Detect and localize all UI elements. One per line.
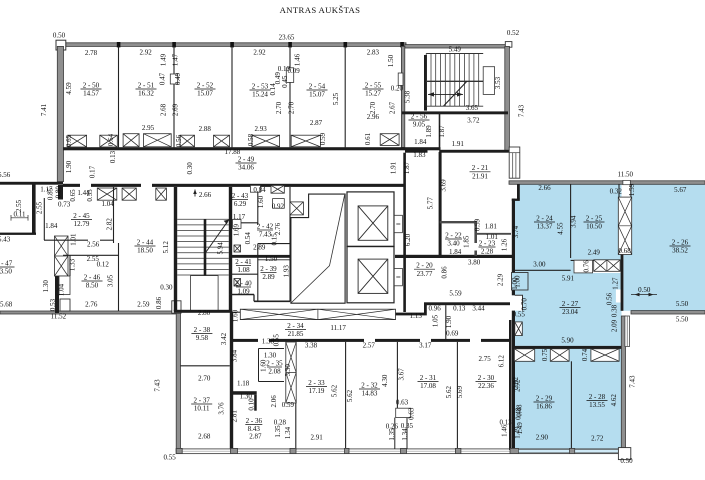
svg-text:2.57: 2.57 xyxy=(363,342,376,350)
svg-text:1.13: 1.13 xyxy=(410,312,423,320)
svg-text:1.81: 1.81 xyxy=(485,222,498,230)
svg-text:2.92: 2.92 xyxy=(139,49,152,57)
svg-text:2.49: 2.49 xyxy=(588,249,601,257)
svg-text:23.77: 23.77 xyxy=(417,270,433,278)
svg-text:5.50: 5.50 xyxy=(676,300,689,308)
svg-text:3.76: 3.76 xyxy=(218,402,226,415)
svg-text:17.19: 17.19 xyxy=(309,387,325,395)
svg-text:5.12: 5.12 xyxy=(162,241,170,254)
svg-text:0.75: 0.75 xyxy=(541,348,549,361)
svg-text:1.46: 1.46 xyxy=(500,424,508,437)
svg-text:2 - 29: 2 - 29 xyxy=(536,394,553,402)
svg-text:38.52: 38.52 xyxy=(672,247,688,255)
svg-text:0.47: 0.47 xyxy=(159,72,167,85)
svg-text:0.69: 0.69 xyxy=(446,330,459,338)
svg-text:2 - 37: 2 - 37 xyxy=(193,396,210,404)
svg-text:22.36: 22.36 xyxy=(478,382,494,390)
svg-text:2.87: 2.87 xyxy=(249,432,262,440)
svg-text:2.69: 2.69 xyxy=(172,103,180,116)
svg-text:2 - 55: 2 - 55 xyxy=(365,81,382,89)
svg-text:1.90: 1.90 xyxy=(445,315,453,328)
svg-text:1.84: 1.84 xyxy=(45,222,58,230)
svg-text:2.55: 2.55 xyxy=(15,199,23,212)
svg-text:3.30: 3.30 xyxy=(284,364,292,377)
svg-text:2 - 33: 2 - 33 xyxy=(308,379,325,387)
svg-text:1.91: 1.91 xyxy=(390,161,398,174)
svg-text:1.90: 1.90 xyxy=(65,160,73,173)
svg-text:0.45: 0.45 xyxy=(281,75,289,88)
svg-text:0.58: 0.58 xyxy=(247,133,255,146)
svg-text:0.63: 0.63 xyxy=(407,407,415,420)
svg-text:1.49: 1.49 xyxy=(516,422,524,435)
svg-text:2 - 44: 2 - 44 xyxy=(137,238,154,246)
svg-text:2 - 30: 2 - 30 xyxy=(478,374,495,382)
svg-text:2.66: 2.66 xyxy=(199,191,212,199)
svg-text:3.67: 3.67 xyxy=(398,368,406,381)
svg-text:3.53: 3.53 xyxy=(494,76,502,89)
svg-text:4.59: 4.59 xyxy=(65,82,73,95)
svg-text:16.86: 16.86 xyxy=(536,403,552,411)
svg-text:21.85: 21.85 xyxy=(288,330,304,338)
svg-text:1.69: 1.69 xyxy=(232,223,240,236)
svg-text:0.76: 0.76 xyxy=(583,260,591,273)
svg-text:2.89: 2.89 xyxy=(262,273,275,281)
svg-text:2.95: 2.95 xyxy=(142,124,155,132)
svg-text:2.93: 2.93 xyxy=(254,125,267,133)
svg-text:2.70: 2.70 xyxy=(288,101,296,114)
svg-text:1.50: 1.50 xyxy=(387,54,395,67)
svg-text:11.52: 11.52 xyxy=(51,313,67,321)
svg-text:13.37: 13.37 xyxy=(537,223,553,231)
svg-text:2.67: 2.67 xyxy=(389,101,397,114)
svg-text:3.72: 3.72 xyxy=(467,117,480,125)
svg-text:1.30: 1.30 xyxy=(264,352,277,360)
svg-text:0.55: 0.55 xyxy=(163,454,176,462)
svg-text:3.17: 3.17 xyxy=(419,342,432,350)
svg-text:11.17: 11.17 xyxy=(330,324,346,332)
svg-text:2 - 54: 2 - 54 xyxy=(309,82,326,90)
svg-text:2.09: 2.09 xyxy=(611,319,619,332)
svg-text:5.50: 5.50 xyxy=(676,316,689,324)
svg-text:5.94: 5.94 xyxy=(217,242,225,255)
svg-text:1.33: 1.33 xyxy=(68,258,76,271)
svg-text:2.66: 2.66 xyxy=(538,184,551,192)
svg-text:1.87: 1.87 xyxy=(403,161,411,174)
svg-text:2.82: 2.82 xyxy=(106,218,114,231)
svg-text:2 - 56: 2 - 56 xyxy=(411,112,428,120)
svg-text:15.24: 15.24 xyxy=(252,91,268,99)
svg-text:5.43: 5.43 xyxy=(0,236,11,244)
svg-text:2.81: 2.81 xyxy=(231,410,239,423)
svg-text:1.60: 1.60 xyxy=(232,309,240,322)
svg-text:2 - 32: 2 - 32 xyxy=(361,381,378,389)
svg-text:1.35: 1.35 xyxy=(388,428,396,441)
svg-text:0.61: 0.61 xyxy=(364,132,372,145)
svg-text:1.87: 1.87 xyxy=(438,125,446,138)
svg-text:2 - 38: 2 - 38 xyxy=(194,326,211,334)
svg-text:16.32: 16.32 xyxy=(138,90,154,98)
svg-text:5.90: 5.90 xyxy=(561,337,574,345)
svg-text:2 - 43: 2 - 43 xyxy=(232,192,249,200)
svg-text:3.84: 3.84 xyxy=(231,349,239,362)
svg-text:1.00: 1.00 xyxy=(511,277,519,290)
svg-text:0.50: 0.50 xyxy=(638,286,651,294)
svg-text:2 - 50: 2 - 50 xyxy=(83,81,100,89)
svg-text:1.47: 1.47 xyxy=(172,53,180,66)
svg-text:3.80: 3.80 xyxy=(468,259,481,267)
svg-text:0.14: 0.14 xyxy=(269,83,277,96)
svg-text:2 - 40: 2 - 40 xyxy=(235,279,252,287)
svg-text:0.74: 0.74 xyxy=(581,348,589,361)
svg-text:5.68: 5.68 xyxy=(0,301,13,309)
svg-text:9.58: 9.58 xyxy=(196,334,209,342)
svg-text:3.05: 3.05 xyxy=(107,274,115,287)
svg-text:3.65: 3.65 xyxy=(466,104,479,112)
svg-text:2.08: 2.08 xyxy=(268,368,281,376)
svg-text:5.67: 5.67 xyxy=(674,186,687,194)
svg-text:1.34: 1.34 xyxy=(284,426,292,439)
svg-text:0.80: 0.80 xyxy=(55,186,63,199)
svg-text:5.59: 5.59 xyxy=(449,290,462,298)
svg-text:0.32: 0.32 xyxy=(610,188,623,196)
svg-text:11.50: 11.50 xyxy=(618,171,634,179)
svg-text:13.55: 13.55 xyxy=(589,401,605,409)
svg-text:2 - 53: 2 - 53 xyxy=(252,82,269,90)
svg-text:1.49: 1.49 xyxy=(160,53,168,66)
svg-text:0.63: 0.63 xyxy=(396,398,409,406)
svg-text:1.84: 1.84 xyxy=(449,248,462,256)
svg-text:2.83: 2.83 xyxy=(367,49,380,57)
svg-text:2 - 41: 2 - 41 xyxy=(235,258,252,266)
svg-text:23.65: 23.65 xyxy=(279,34,295,42)
svg-text:3.38: 3.38 xyxy=(305,342,318,350)
svg-text:0.92: 0.92 xyxy=(272,203,285,211)
svg-text:15.27: 15.27 xyxy=(365,90,381,98)
svg-text:0.70: 0.70 xyxy=(520,298,528,311)
svg-text:2.68: 2.68 xyxy=(160,103,168,116)
svg-text:1.09: 1.09 xyxy=(237,288,250,296)
svg-text:2.28: 2.28 xyxy=(481,248,494,256)
svg-text:0.56: 0.56 xyxy=(175,134,183,147)
svg-text:15.07: 15.07 xyxy=(197,90,213,98)
svg-text:0.55: 0.55 xyxy=(273,334,281,347)
svg-text:2.06: 2.06 xyxy=(270,395,278,408)
svg-text:5.25: 5.25 xyxy=(332,92,340,105)
svg-text:1.91: 1.91 xyxy=(452,140,465,148)
svg-text:2.87: 2.87 xyxy=(310,119,323,127)
svg-text:3.42: 3.42 xyxy=(220,332,228,345)
svg-text:14.57: 14.57 xyxy=(83,90,99,98)
svg-text:0.48: 0.48 xyxy=(515,404,523,417)
svg-text:1.17: 1.17 xyxy=(233,213,246,221)
svg-text:2 - 24: 2 - 24 xyxy=(536,214,553,222)
svg-text:0.12: 0.12 xyxy=(97,261,110,269)
svg-text:1.30: 1.30 xyxy=(42,280,50,293)
svg-text:2.76: 2.76 xyxy=(274,222,282,235)
svg-text:2 - 49: 2 - 49 xyxy=(238,155,255,163)
svg-text:2 - 21: 2 - 21 xyxy=(472,164,489,172)
svg-text:1.46: 1.46 xyxy=(293,53,301,66)
svg-text:0.09: 0.09 xyxy=(287,67,300,75)
svg-text:1.85: 1.85 xyxy=(462,235,470,248)
svg-text:0.13: 0.13 xyxy=(109,150,117,163)
svg-text:2 - 27: 2 - 27 xyxy=(562,300,579,308)
svg-text:17.08: 17.08 xyxy=(420,382,436,390)
svg-text:1.60: 1.60 xyxy=(257,195,265,208)
svg-text:1.84: 1.84 xyxy=(414,138,427,146)
svg-text:7.41: 7.41 xyxy=(40,103,48,116)
svg-text:0.59: 0.59 xyxy=(474,218,482,231)
svg-text:0.55: 0.55 xyxy=(86,189,94,202)
svg-text:0.17: 0.17 xyxy=(89,165,97,178)
svg-text:2.59: 2.59 xyxy=(137,301,150,309)
svg-text:2 - 46: 2 - 46 xyxy=(84,273,101,281)
svg-text:0.30: 0.30 xyxy=(186,162,194,175)
svg-text:1.05: 1.05 xyxy=(432,314,440,327)
svg-text:1.27: 1.27 xyxy=(612,277,620,290)
svg-text:3.00: 3.00 xyxy=(533,261,546,269)
svg-text:2.88: 2.88 xyxy=(199,125,212,133)
svg-text:0.54: 0.54 xyxy=(244,232,252,245)
svg-text:2 - 20: 2 - 20 xyxy=(416,262,433,270)
svg-text:2.29: 2.29 xyxy=(497,273,505,286)
svg-text:15.07: 15.07 xyxy=(309,91,325,99)
svg-text:9.05: 9.05 xyxy=(413,121,426,129)
svg-text:3.74: 3.74 xyxy=(512,225,520,238)
svg-text:0.86: 0.86 xyxy=(155,296,163,309)
svg-text:0.53: 0.53 xyxy=(49,298,57,311)
svg-text:5.69: 5.69 xyxy=(456,385,464,398)
svg-text:1.04: 1.04 xyxy=(101,200,114,208)
svg-text:2.89: 2.89 xyxy=(253,244,266,252)
svg-text:2 - 26: 2 - 26 xyxy=(672,238,689,246)
svg-text:2 - 39: 2 - 39 xyxy=(260,265,277,273)
svg-text:2.92: 2.92 xyxy=(512,376,520,389)
svg-text:1.34: 1.34 xyxy=(401,428,409,441)
svg-text:0.96: 0.96 xyxy=(428,305,441,313)
svg-text:4.30: 4.30 xyxy=(381,374,389,387)
svg-text:1.59: 1.59 xyxy=(628,183,636,196)
svg-text:6.20: 6.20 xyxy=(404,233,412,246)
svg-text:0.38: 0.38 xyxy=(611,304,619,317)
svg-text:3.69: 3.69 xyxy=(440,179,448,192)
svg-text:0.68: 0.68 xyxy=(618,247,631,255)
svg-text:5.38: 5.38 xyxy=(403,90,411,103)
svg-text:7.43: 7.43 xyxy=(629,375,637,388)
svg-text:14.83: 14.83 xyxy=(362,390,378,398)
svg-text:1.83: 1.83 xyxy=(413,151,426,159)
svg-text:1.08: 1.08 xyxy=(237,266,250,274)
svg-text:0.50: 0.50 xyxy=(53,32,66,40)
svg-text:2 - 42: 2 - 42 xyxy=(257,222,274,230)
svg-text:2 - 34: 2 - 34 xyxy=(287,322,304,330)
svg-text:2 - 35: 2 - 35 xyxy=(266,359,283,367)
svg-text:0.20: 0.20 xyxy=(391,85,404,93)
svg-text:10.11: 10.11 xyxy=(194,405,210,413)
svg-text:5.62: 5.62 xyxy=(445,385,453,398)
svg-text:0.85: 0.85 xyxy=(47,187,55,200)
svg-text:2 - 28: 2 - 28 xyxy=(589,393,606,401)
svg-text:7.43: 7.43 xyxy=(153,379,161,392)
svg-text:10.50: 10.50 xyxy=(586,223,602,231)
svg-text:3.40: 3.40 xyxy=(447,240,460,248)
svg-text:0.49: 0.49 xyxy=(174,72,182,85)
svg-text:0.65: 0.65 xyxy=(65,134,73,147)
svg-text:0.64: 0.64 xyxy=(107,133,115,146)
svg-text:1.26: 1.26 xyxy=(501,238,509,251)
svg-text:2.91: 2.91 xyxy=(310,433,323,441)
svg-text:0.55: 0.55 xyxy=(513,311,526,319)
svg-text:3.44: 3.44 xyxy=(472,305,485,313)
svg-text:0.86: 0.86 xyxy=(440,266,448,279)
svg-text:5.62: 5.62 xyxy=(346,389,354,402)
svg-text:1.18: 1.18 xyxy=(237,380,250,388)
svg-text:0.30: 0.30 xyxy=(160,284,173,292)
svg-text:2.68: 2.68 xyxy=(198,432,211,440)
svg-text:2.80: 2.80 xyxy=(198,309,211,317)
svg-text:2 - 52: 2 - 52 xyxy=(197,81,214,89)
svg-text:17.88: 17.88 xyxy=(225,148,241,156)
svg-text:1.89: 1.89 xyxy=(425,125,433,138)
svg-text:2.76: 2.76 xyxy=(85,301,98,309)
svg-text:4.62: 4.62 xyxy=(610,394,618,407)
svg-text:0.10: 0.10 xyxy=(247,398,255,411)
svg-text:3.94: 3.94 xyxy=(569,215,577,228)
svg-text:1.93: 1.93 xyxy=(283,265,291,278)
svg-text:8.50: 8.50 xyxy=(86,282,99,290)
svg-text:5.49: 5.49 xyxy=(449,45,462,53)
svg-text:23.04: 23.04 xyxy=(562,308,578,316)
svg-text:0.15: 0.15 xyxy=(270,233,278,246)
svg-text:2 - 45: 2 - 45 xyxy=(73,212,90,220)
svg-text:0.13: 0.13 xyxy=(453,305,466,313)
svg-text:23.50: 23.50 xyxy=(0,268,12,276)
svg-text:2.90: 2.90 xyxy=(536,434,549,442)
svg-text:2.75: 2.75 xyxy=(478,355,491,363)
svg-text:2.70: 2.70 xyxy=(198,375,211,383)
svg-text:18.50: 18.50 xyxy=(137,247,153,255)
svg-text:0.28: 0.28 xyxy=(274,419,287,427)
svg-text:21.91: 21.91 xyxy=(472,172,488,180)
svg-text:1.60: 1.60 xyxy=(259,359,267,372)
svg-text:1.01: 1.01 xyxy=(69,233,77,246)
svg-text:34.06: 34.06 xyxy=(238,164,254,172)
svg-text:0.59: 0.59 xyxy=(319,132,327,145)
svg-text:0.59: 0.59 xyxy=(282,401,295,409)
svg-text:0.56: 0.56 xyxy=(606,292,614,305)
svg-text:2 - 31: 2 - 31 xyxy=(420,374,437,382)
svg-text:1.35: 1.35 xyxy=(274,425,282,438)
svg-text:0.50: 0.50 xyxy=(620,457,633,465)
svg-text:5.62: 5.62 xyxy=(331,384,339,397)
svg-text:0.65: 0.65 xyxy=(69,189,77,202)
svg-text:5.77: 5.77 xyxy=(427,197,435,210)
svg-text:0.52: 0.52 xyxy=(507,29,520,37)
svg-text:6.12: 6.12 xyxy=(497,355,505,368)
svg-text:2.70: 2.70 xyxy=(275,101,283,114)
svg-text:2.55: 2.55 xyxy=(36,201,44,214)
svg-text:2.70: 2.70 xyxy=(369,101,377,114)
svg-text:0.84: 0.84 xyxy=(253,186,266,194)
svg-text:7.43: 7.43 xyxy=(517,104,525,117)
svg-text:2 - 36: 2 - 36 xyxy=(246,417,263,425)
svg-text:4.55: 4.55 xyxy=(557,222,565,235)
svg-text:2 - 22: 2 - 22 xyxy=(445,231,462,239)
svg-text:1.04: 1.04 xyxy=(58,283,66,296)
svg-text:2 - 47: 2 - 47 xyxy=(0,259,13,267)
svg-text:6.29: 6.29 xyxy=(234,200,247,208)
svg-text:2.56: 2.56 xyxy=(87,240,100,248)
svg-text:2.78: 2.78 xyxy=(85,49,98,57)
svg-text:6.56: 6.56 xyxy=(0,171,11,179)
svg-text:2 - 51: 2 - 51 xyxy=(138,81,155,89)
svg-text:5.91: 5.91 xyxy=(562,275,575,283)
svg-text:2.92: 2.92 xyxy=(253,49,266,57)
svg-text:2.72: 2.72 xyxy=(591,435,604,443)
svg-text:ANTRAS AUKŠTAS: ANTRAS AUKŠTAS xyxy=(280,5,361,15)
svg-text:1.01: 1.01 xyxy=(486,233,499,241)
svg-text:2 - 25: 2 - 25 xyxy=(586,214,603,222)
svg-text:1.50: 1.50 xyxy=(265,255,278,263)
svg-text:12.79: 12.79 xyxy=(74,220,90,228)
